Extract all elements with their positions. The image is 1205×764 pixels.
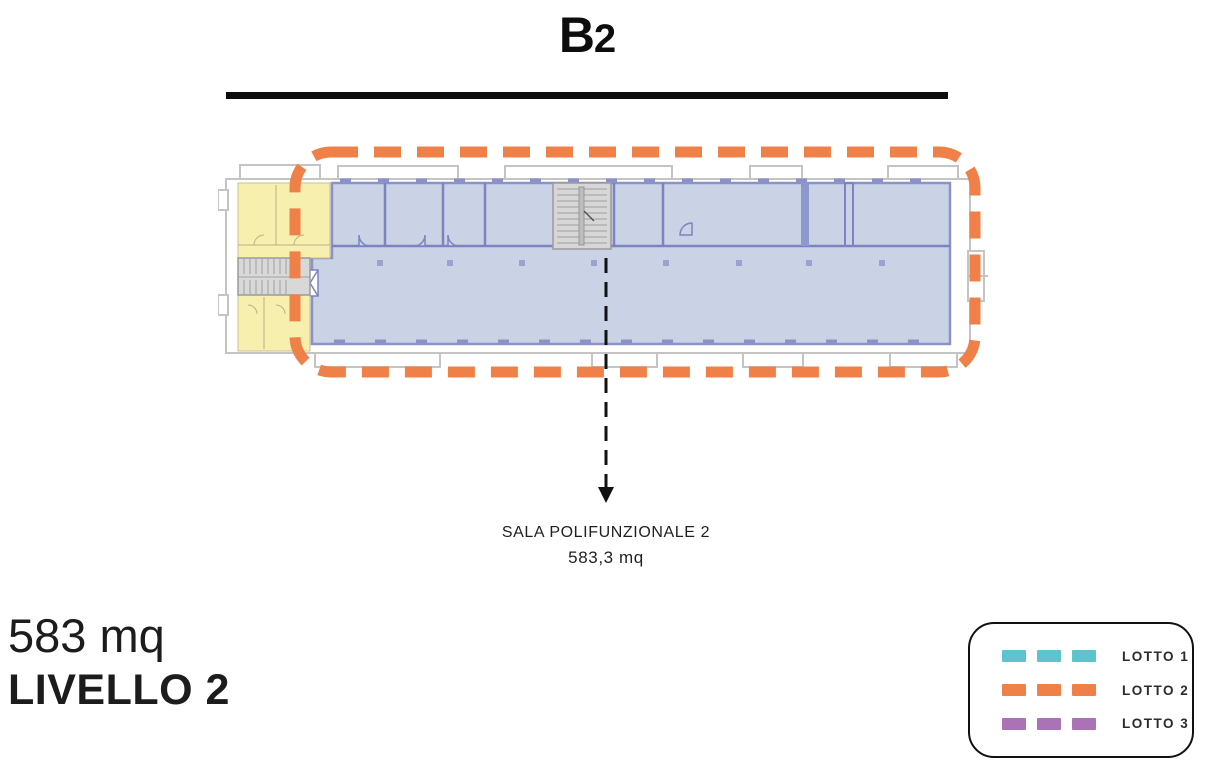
dash-icon [1072,650,1096,662]
level-text: LIVELLO 2 [8,666,230,715]
legend-row-lotto1: LOTTO 1 [1002,649,1192,664]
title-divider-rule [226,92,948,99]
page-title-main: B [559,7,594,63]
page-title-sub: 2 [594,17,615,61]
dash-icon [1002,718,1026,730]
lotto2-highlight-area [302,181,950,344]
total-area-text: 583 mq [8,608,230,663]
page-title: B2 [226,6,948,64]
central-stairwell [553,183,611,249]
info-block: 583 mq LIVELLO 2 [8,608,230,715]
dash-icon [1072,718,1096,730]
dash-icon [1037,684,1061,696]
dash-icon [1002,684,1026,696]
dash-icon [1037,650,1061,662]
callout-label: SALA POLIFUNZIONALE 2 583,3 mq [406,524,806,568]
room-area: 583,3 mq [406,548,806,568]
floor-plan-container [218,145,990,507]
room-name: SALA POLIFUNZIONALE 2 [406,524,806,542]
legend-box: LOTTO 1 LOTTO 2 LOTTO 3 [968,622,1194,758]
legend-label-lotto2: LOTTO 2 [1122,683,1189,698]
legend-label-lotto1: LOTTO 1 [1122,649,1189,664]
lotto1-dash-swatch [1002,650,1096,662]
lotto2-dash-swatch [1002,684,1096,696]
legend-row-lotto2: LOTTO 2 [1002,683,1192,698]
lotto3-dash-swatch [1002,718,1096,730]
legend-label-lotto3: LOTTO 3 [1122,716,1189,731]
dash-icon [1072,684,1096,696]
dash-icon [1002,650,1026,662]
dash-icon [1037,718,1061,730]
floor-plan [218,145,990,507]
legend-row-lotto3: LOTTO 3 [1002,716,1192,731]
slide-page: B2 [0,0,1205,764]
